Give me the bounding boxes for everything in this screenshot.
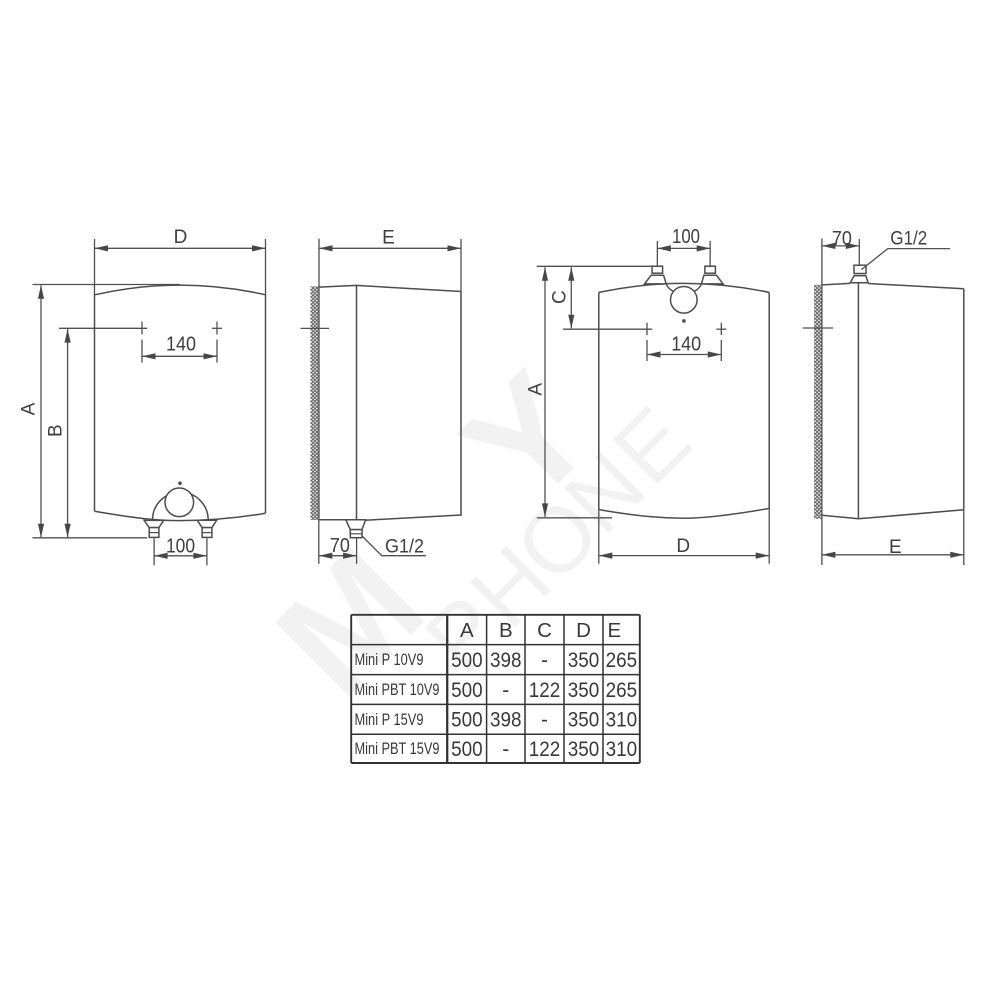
svg-text:Mini PBT 15V9: Mini PBT 15V9	[355, 740, 440, 758]
svg-text:D: D	[676, 536, 690, 557]
svg-text:350: 350	[568, 709, 600, 732]
svg-text:D: D	[576, 619, 591, 642]
svg-text:Mini P 15V9: Mini P 15V9	[355, 711, 424, 729]
svg-text:265: 265	[606, 679, 638, 702]
svg-text:-: -	[502, 738, 509, 761]
svg-text:-: -	[541, 649, 548, 672]
svg-text:B: B	[499, 619, 513, 642]
svg-text:70: 70	[832, 228, 852, 250]
svg-text:122: 122	[529, 738, 561, 761]
svg-text:E: E	[889, 537, 902, 558]
svg-text:350: 350	[568, 649, 600, 672]
svg-text:500: 500	[451, 738, 483, 761]
svg-text:Mini PBT 10V9: Mini PBT 10V9	[355, 681, 440, 699]
svg-text:B: B	[46, 424, 67, 437]
svg-text:398: 398	[490, 649, 522, 672]
svg-text:A: A	[460, 619, 474, 642]
svg-text:E: E	[608, 619, 622, 642]
svg-text:500: 500	[451, 709, 483, 732]
svg-text:G1/2: G1/2	[890, 227, 927, 249]
svg-text:-: -	[502, 679, 509, 702]
svg-text:C: C	[550, 290, 571, 304]
svg-text:A: A	[526, 383, 547, 396]
svg-text:G1/2: G1/2	[385, 536, 424, 558]
svg-text:Mini P 10V9: Mini P 10V9	[355, 651, 424, 669]
svg-text:A: A	[19, 402, 40, 415]
svg-text:C: C	[537, 619, 552, 642]
svg-text:E: E	[382, 228, 395, 249]
svg-text:100: 100	[672, 226, 700, 248]
svg-text:398: 398	[490, 709, 522, 732]
svg-text:-: -	[541, 709, 548, 732]
svg-text:265: 265	[606, 649, 638, 672]
svg-text:140: 140	[671, 333, 701, 355]
svg-text:350: 350	[568, 679, 600, 702]
svg-text:70: 70	[330, 535, 350, 557]
svg-text:350: 350	[568, 738, 600, 761]
svg-text:140: 140	[166, 333, 196, 355]
svg-text:500: 500	[451, 679, 483, 702]
svg-text:100: 100	[166, 535, 195, 557]
svg-text:310: 310	[606, 709, 638, 732]
svg-text:310: 310	[606, 738, 638, 761]
svg-text:500: 500	[451, 649, 483, 672]
svg-text:122: 122	[529, 679, 561, 702]
svg-text:D: D	[174, 227, 188, 248]
